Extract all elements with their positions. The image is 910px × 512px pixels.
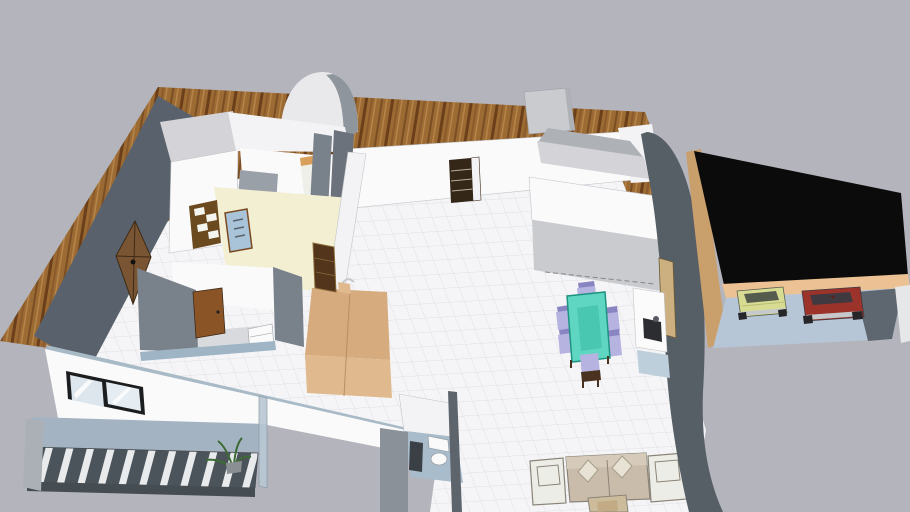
bedroom-right-wall: [273, 267, 304, 347]
shower-glass: [225, 209, 252, 252]
bedroom-door: [193, 288, 225, 338]
bedroom-door-knob: [216, 310, 219, 313]
glass-shower-panel: [225, 209, 252, 252]
island-front: [305, 355, 392, 398]
balcony-left-cap: [23, 419, 44, 491]
balcony-railing: [27, 447, 258, 488]
toilet-bowl: [431, 453, 447, 465]
coffee-table-top: [597, 500, 618, 512]
console-insert: [643, 318, 662, 342]
car-wheel: [852, 311, 863, 320]
wall-shelf-unit: [189, 200, 221, 249]
balcony-glass-end: [259, 396, 267, 488]
scene-canvas: [0, 0, 910, 512]
model-viewport[interactable]: [0, 0, 910, 512]
entry-door-sidelight: [471, 157, 481, 201]
car-wheel: [738, 312, 747, 320]
plant-pot: [226, 461, 242, 474]
car-wheel: [803, 315, 813, 324]
car-emblem: [832, 296, 835, 299]
armchair-left: [530, 458, 566, 505]
kitchen-hutch: [313, 243, 336, 292]
wc-left-wall: [380, 428, 408, 512]
red-car: [802, 287, 864, 324]
yellow-car: [737, 287, 787, 320]
island-top: [305, 288, 390, 360]
coffee-table: [588, 495, 628, 512]
water-heater: [409, 441, 423, 472]
console-dial: [653, 316, 659, 322]
door-knob: [131, 260, 136, 265]
car-wheel: [778, 309, 787, 317]
sofa: [566, 453, 650, 502]
